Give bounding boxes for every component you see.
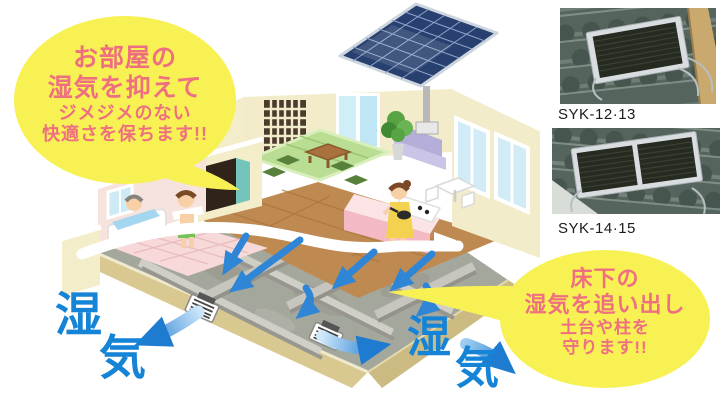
bubble-room-line2: 湿気を抑えて xyxy=(14,74,236,104)
bubble-room-line4: 快適さを保ちます!! xyxy=(14,124,236,145)
moisture-label-left: 湿 xyxy=(55,291,102,338)
brochure-page: お部屋の 湿気を抑えて ジメジメのない 快適さを保ちます!! 床下の 湿気を追い… xyxy=(0,0,720,407)
bubble-underfloor-line3: 土台や柱を xyxy=(500,318,710,338)
product-photo-syk-14-15 xyxy=(552,128,720,214)
moisture-exit-arrow-left xyxy=(150,312,198,339)
speech-bubble-underfloor: 床下の 湿気を追い出し 土台や柱を 守ります!! xyxy=(500,250,710,388)
speech-bubble-room: お部屋の 湿気を抑えて ジメジメのない 快適さを保ちます!! xyxy=(14,16,236,184)
bubble-room-line1: お部屋の xyxy=(14,44,236,74)
bubble-underfloor-line2: 湿気を追い出し xyxy=(500,292,710,318)
person-in-bath xyxy=(126,195,142,211)
outer-wall-fragment xyxy=(61,227,101,296)
product-photo-syk-12-13 xyxy=(560,8,716,104)
moisture-label-right: 湿 xyxy=(407,316,451,360)
product-model-label: SYK-12·13 xyxy=(558,106,636,123)
product-model-label: SYK-14·15 xyxy=(558,220,636,237)
window-right-2 xyxy=(496,134,528,212)
bubble-underfloor-line1: 床下の xyxy=(500,266,710,292)
bubble-room-line3: ジメジメのない xyxy=(14,103,236,124)
bubble-underfloor-line4: 守ります!! xyxy=(500,338,710,358)
moisture-label-right: 気 xyxy=(455,347,499,391)
moisture-label-left: 気 xyxy=(99,334,146,381)
